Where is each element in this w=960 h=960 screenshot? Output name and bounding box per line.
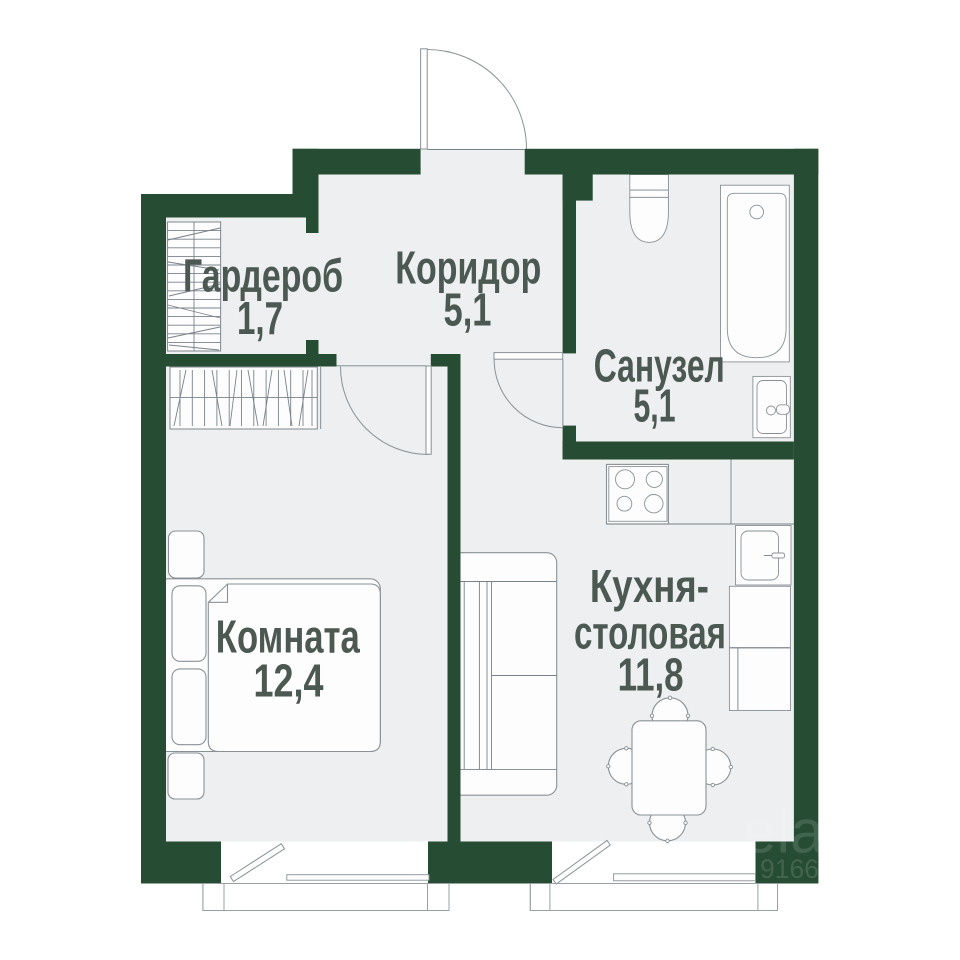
- svg-text:91664: 91664: [760, 854, 834, 884]
- svg-text:1,7: 1,7: [237, 292, 283, 344]
- svg-text:11,8: 11,8: [618, 649, 684, 701]
- svg-text:12,4: 12,4: [254, 655, 324, 707]
- svg-text:5,1: 5,1: [634, 380, 676, 432]
- svg-text:Кухня-: Кухня-: [590, 560, 709, 612]
- svg-text:5,1: 5,1: [444, 284, 492, 336]
